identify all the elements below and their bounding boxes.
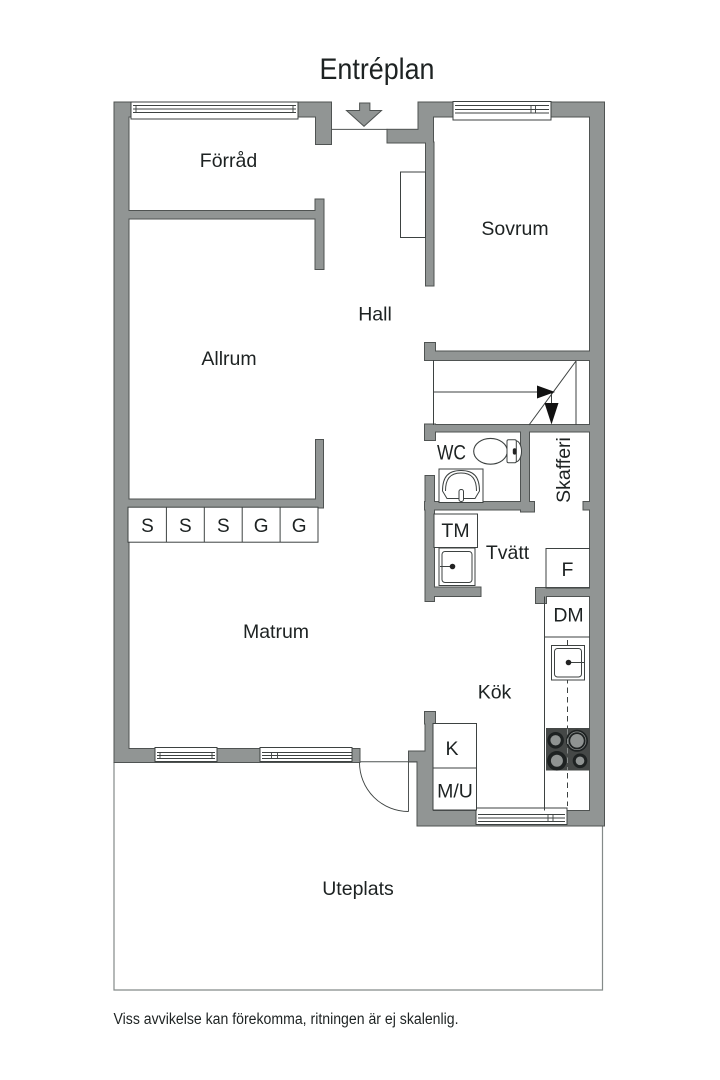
svg-text:TM: TM <box>441 520 469 542</box>
svg-text:Matrum: Matrum <box>243 621 309 643</box>
svg-text:M/U: M/U <box>437 781 473 803</box>
svg-text:Allrum: Allrum <box>201 348 256 370</box>
svg-text:Viss avvikelse kan förekomma,: Viss avvikelse kan förekomma, ritningen … <box>114 1011 459 1028</box>
svg-text:Kök: Kök <box>478 682 512 704</box>
svg-text:Förråd: Förråd <box>200 150 257 172</box>
svg-text:K: K <box>445 738 458 760</box>
svg-text:Sovrum: Sovrum <box>481 218 548 240</box>
svg-text:S: S <box>141 516 154 537</box>
svg-text:DM: DM <box>553 605 583 627</box>
svg-text:G: G <box>254 516 269 537</box>
svg-text:Tvätt: Tvätt <box>486 542 530 564</box>
svg-text:Uteplats: Uteplats <box>322 878 394 900</box>
svg-text:Entréplan: Entréplan <box>320 53 435 86</box>
svg-text:Skafferi: Skafferi <box>553 437 575 503</box>
svg-text:Hall: Hall <box>358 304 392 326</box>
svg-text:G: G <box>292 516 307 537</box>
svg-text:F: F <box>562 559 574 581</box>
svg-text:S: S <box>179 516 192 537</box>
svg-text:WC: WC <box>437 442 466 465</box>
svg-text:S: S <box>217 516 230 537</box>
